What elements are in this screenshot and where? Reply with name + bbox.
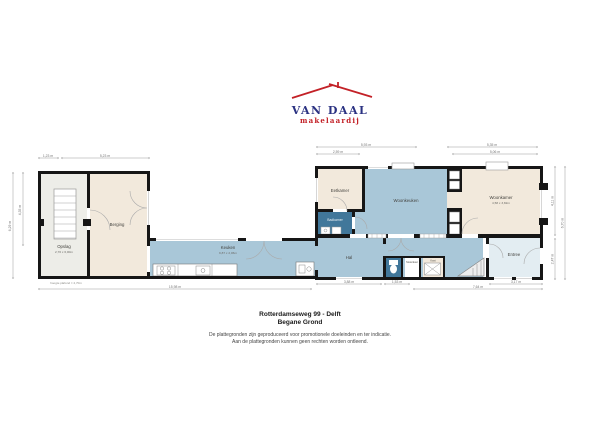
kitchen-counter-icon [153,264,237,276]
room-label-woonkeuken: Woonkeuken [393,198,419,203]
cabinet-icon [450,212,460,222]
shaft-icon [425,263,441,275]
dim-label: 5,06 m [490,150,501,154]
room-label-woonkamer: Woonkamer [489,195,513,200]
dim-label: 1,53 m [392,280,403,284]
room-label-keuken: Keuken [221,245,236,250]
stairs-icon [54,189,76,239]
cupboard-icon [296,262,314,276]
cabinet-icon [450,181,460,189]
room-label-kast: Kast [430,259,435,263]
room-label-badkamer: Badkamer [327,218,343,222]
room-label-entree: Entree [508,252,521,257]
floorplan-drawing: Opslag 2,70 x 6,00m Berging hoogte plafo… [0,0,600,424]
room-label-eetkamer: Eetkamer [331,188,350,193]
low-windows [368,234,446,238]
room-dims-woonkamer: 4,58 x 3,82m [492,201,510,205]
footer: Rotterdamseweg 99 - Delft Begane Grond D… [0,311,600,345]
ceiling-note: hoogte plafond = 2,70m [50,281,82,285]
room-label-meterkast: Meterkast [406,260,418,264]
floorplan-page: VAN DAAL makelaardij Opslag 2,70 x 6,00m… [0,0,600,424]
dim-label: 2,59 m [333,150,344,154]
dim-label: 3,88 m [344,280,355,284]
dim-label: 4,35 m [18,205,22,216]
washer-icon [332,227,341,234]
dim-label: 15,98 m [169,285,181,289]
dim-label: 2,47 m [551,254,555,265]
bay-window-icon [486,162,508,170]
washbasin-icon [321,227,330,234]
address-title: Rotterdamseweg 99 - Delft [0,311,600,319]
dim-label: 4,11 m [551,196,555,206]
room-entree [489,238,540,277]
dim-label: 5,23 m [100,154,111,158]
room-label-berging: Berging [110,222,125,227]
dim-label: 5,93 m [361,143,372,147]
dim-label: 6,70 m [561,218,565,229]
right-block-rooms [318,169,540,277]
disclaimer-line-2: Aan de plattegronden kunnen geen rechten… [0,339,600,346]
dim-label: 7,64 m [473,285,484,289]
floor-subtitle: Begane Grond [0,319,600,327]
room-berging: Berging [90,174,149,276]
room-opslag: Opslag 2,70 x 6,00m [41,174,87,276]
dim-label: 6,29 m [8,221,12,232]
room-dims-opslag: 2,70 x 6,00m [55,250,73,254]
cabinet-icon [450,171,460,179]
dim-label: 5,35 m [487,143,498,147]
dim-label: 1,23 m [43,154,54,158]
room-dims-keuken: 9,87 x 2,06m [219,251,237,255]
dim-label: 3,17 m [511,280,522,284]
room-label-opslag: Opslag [57,244,71,249]
door-recess [392,163,414,169]
room-label-hal: Hal [346,255,352,260]
room-keuken: Keuken 9,87 x 2,06m [150,240,318,277]
cabinet-icon [450,224,460,234]
